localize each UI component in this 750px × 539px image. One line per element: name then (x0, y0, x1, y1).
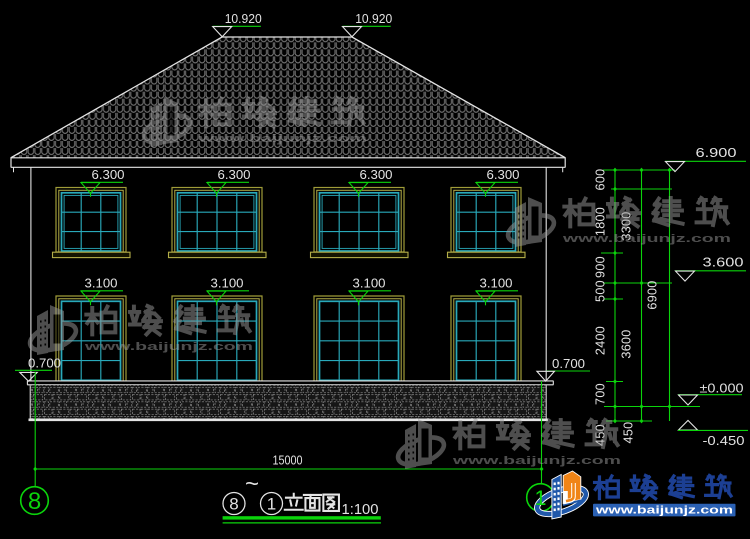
svg-text:6.300: 6.300 (487, 167, 520, 182)
svg-text:450: 450 (622, 422, 636, 444)
svg-text:10.920: 10.920 (225, 11, 262, 26)
svg-text:8: 8 (229, 495, 238, 514)
svg-text:±0.000: ±0.000 (700, 380, 744, 395)
svg-text:3.100: 3.100 (211, 276, 244, 291)
svg-text:1800: 1800 (594, 207, 608, 236)
svg-text:3.100: 3.100 (480, 276, 513, 291)
svg-text:6.300: 6.300 (360, 167, 393, 182)
svg-text:1:100: 1:100 (342, 502, 379, 518)
svg-text:0.700: 0.700 (552, 356, 585, 371)
svg-text:15000: 15000 (273, 454, 303, 468)
svg-text:6.900: 6.900 (696, 145, 737, 160)
svg-text:6.300: 6.300 (92, 167, 125, 182)
svg-text:3.100: 3.100 (85, 276, 118, 291)
svg-text:2400: 2400 (594, 326, 608, 355)
svg-text:1: 1 (535, 487, 547, 510)
svg-text:1: 1 (267, 495, 276, 514)
svg-text:-0.450: -0.450 (703, 433, 745, 448)
svg-text:~: ~ (245, 471, 259, 498)
svg-text:www.baijunjz.com: www.baijunjz.com (595, 505, 734, 517)
svg-text:700: 700 (594, 383, 608, 405)
svg-text:6900: 6900 (646, 280, 660, 309)
svg-text:3.100: 3.100 (353, 276, 386, 291)
svg-text:0.700: 0.700 (28, 356, 61, 371)
svg-text:500: 500 (594, 280, 608, 302)
svg-text:www.baijunjz.com: www.baijunjz.com (197, 133, 367, 145)
svg-text:900: 900 (594, 256, 608, 278)
svg-text:6.300: 6.300 (218, 167, 251, 182)
svg-text:www.baijunjz.com: www.baijunjz.com (561, 233, 731, 245)
svg-text:www.baijunjz.com: www.baijunjz.com (83, 341, 253, 353)
svg-text:www.baijunjz.com: www.baijunjz.com (451, 455, 621, 467)
svg-text:10.920: 10.920 (355, 11, 392, 26)
svg-text:8: 8 (28, 488, 41, 515)
svg-text:3600: 3600 (620, 329, 634, 358)
svg-text:3.600: 3.600 (703, 255, 744, 270)
svg-text:600: 600 (594, 169, 608, 191)
